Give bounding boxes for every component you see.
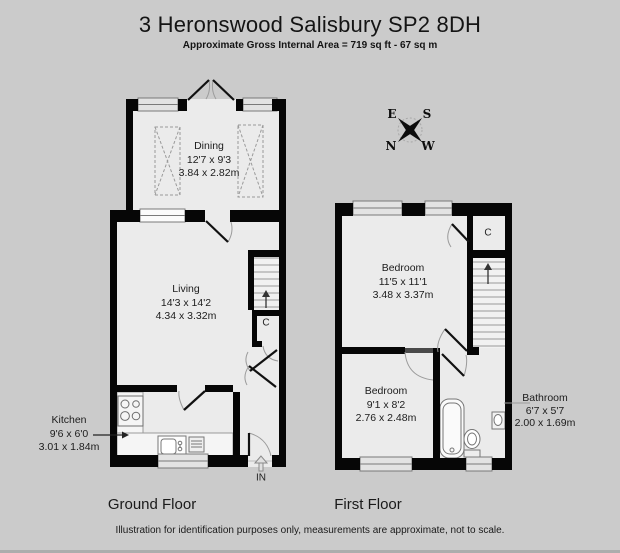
ground-stairs (254, 253, 279, 310)
ground-floor-plan (93, 80, 286, 471)
first-stairs (473, 258, 505, 348)
room-dimensions-imperial: 9'6 x 6'0 (39, 428, 100, 442)
disclaimer-text: Illustration for identification purposes… (0, 525, 620, 536)
room-dimensions-imperial: 14'3 x 14'2 (156, 297, 217, 311)
room-name: Living (156, 283, 217, 297)
room-dimensions-metric: 2.00 x 1.69m (515, 417, 576, 430)
compass-east-label: E (387, 107, 396, 121)
bathtub-icon (440, 399, 464, 458)
appliance-icon (189, 437, 204, 452)
floorplan-page: 3 Heronswood Salisbury SP2 8DH Approxima… (0, 0, 620, 553)
room-name: Bedroom (356, 385, 417, 399)
bedroom-front-label: Bedroom 11'5 x 11'1 3.48 x 3.37m (373, 262, 434, 303)
room-dimensions-metric: 2.76 x 2.48m (356, 412, 417, 426)
sink-icon (158, 436, 186, 456)
ground-floor-title: Ground Floor (108, 496, 196, 513)
dining-room-label: Dining 12'7 x 9'3 3.84 x 2.82m (179, 140, 240, 181)
ground-closet-label: C (262, 318, 269, 329)
sliding-door-leaf (405, 348, 433, 353)
room-dimensions-imperial: 9'1 x 8'2 (356, 399, 417, 413)
room-name: Bathroom (515, 392, 576, 405)
room-dimensions-imperial: 6'7 x 5'7 (515, 405, 576, 418)
compass-west-label: W (421, 139, 434, 153)
compass-south-label: S (423, 107, 432, 121)
first-closet-label: C (484, 228, 491, 239)
room-dimensions-metric: 4.34 x 3.32m (156, 310, 217, 324)
first-floor-plan (335, 201, 530, 471)
room-name: Dining (179, 140, 240, 154)
entrance-in-label: IN (256, 473, 266, 484)
floorplan-drawing (0, 0, 620, 553)
toilet-icon (464, 430, 480, 458)
room-dimensions-metric: 3.84 x 2.82m (179, 167, 240, 181)
compass-north-label: N (386, 139, 397, 153)
washbasin-icon (492, 412, 505, 429)
bathroom-label: Bathroom 6'7 x 5'7 2.00 x 1.69m (515, 392, 576, 430)
room-name: Bedroom (373, 262, 434, 276)
room-dimensions-metric: 3.48 x 3.37m (373, 289, 434, 303)
first-floor-title: First Floor (334, 496, 402, 513)
room-dimensions-imperial: 12'7 x 9'3 (179, 154, 240, 168)
room-name: Kitchen (39, 414, 100, 428)
room-dimensions-metric: 3.01 x 1.84m (39, 441, 100, 455)
compass-rose (398, 118, 422, 142)
bedroom-back-label: Bedroom 9'1 x 8'2 2.76 x 2.48m (356, 385, 417, 426)
living-room-label: Living 14'3 x 14'2 4.34 x 3.32m (156, 283, 217, 324)
kitchen-label: Kitchen 9'6 x 6'0 3.01 x 1.84m (39, 414, 100, 455)
room-dimensions-imperial: 11'5 x 11'1 (373, 276, 434, 290)
